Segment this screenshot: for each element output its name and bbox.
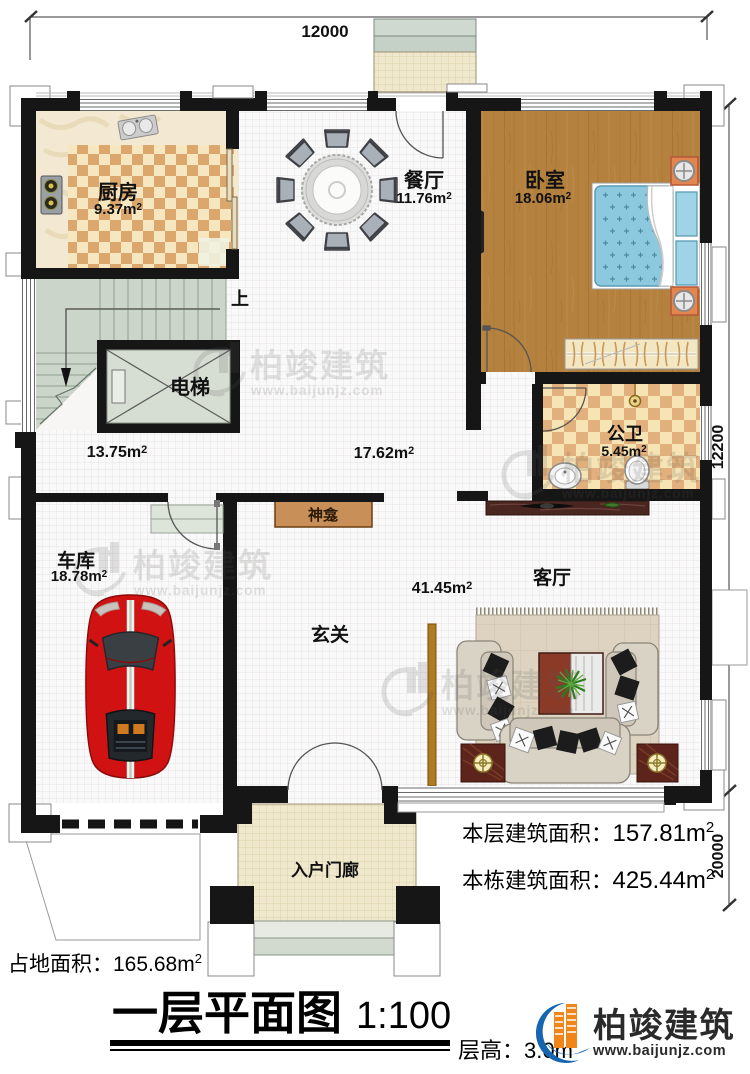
svg-text:电梯: 电梯 bbox=[170, 375, 210, 399]
svg-text:神龛: 神龛 bbox=[308, 506, 339, 524]
svg-text:www.baijunjz.com: www.baijunjz.com bbox=[561, 486, 695, 501]
svg-text:上: 上 bbox=[231, 289, 249, 309]
svg-text:18.78m2: 18.78m2 bbox=[51, 568, 108, 585]
svg-text:柏竣建筑: 柏竣建筑 bbox=[593, 1006, 735, 1045]
svg-text:卧室: 卧室 bbox=[525, 168, 565, 192]
svg-text:入户门廊: 入户门廊 bbox=[291, 860, 359, 880]
svg-text:www.baijunjz.com: www.baijunjz.com bbox=[441, 703, 575, 718]
svg-text:www.baijunjz.com: www.baijunjz.com bbox=[133, 583, 267, 598]
svg-text:本层建筑面积：157.81m2: 本层建筑面积：157.81m2 bbox=[462, 819, 714, 847]
svg-text:柏竣建筑: 柏竣建筑 bbox=[250, 347, 390, 384]
svg-text:41.45m2: 41.45m2 bbox=[412, 580, 472, 597]
svg-text:玄关: 玄关 bbox=[311, 623, 349, 646]
svg-text:柏竣建筑: 柏竣建筑 bbox=[133, 547, 273, 584]
svg-text:12000: 12000 bbox=[301, 22, 348, 41]
svg-text:9.37m2: 9.37m2 bbox=[94, 201, 143, 218]
svg-text:5.45m2: 5.45m2 bbox=[601, 443, 647, 459]
svg-text:18.06m2: 18.06m2 bbox=[515, 190, 572, 207]
svg-text:www.baijunjz.com: www.baijunjz.com bbox=[250, 383, 384, 398]
svg-text:1:100: 1:100 bbox=[356, 995, 451, 1037]
svg-text:17.62m2: 17.62m2 bbox=[354, 445, 414, 462]
svg-text:一层平面图: 一层平面图 bbox=[112, 987, 342, 1039]
svg-text:餐厅: 餐厅 bbox=[404, 168, 444, 192]
svg-text:13.75m2: 13.75m2 bbox=[87, 444, 147, 461]
svg-text:公卫: 公卫 bbox=[607, 424, 643, 444]
svg-text:本栋建筑面积：425.44m2: 本栋建筑面积：425.44m2 bbox=[462, 866, 714, 894]
svg-text:www.baijunjz.com: www.baijunjz.com bbox=[592, 1043, 726, 1059]
svg-text:柏竣建筑: 柏竣建筑 bbox=[441, 667, 581, 704]
svg-text:占地面积：165.68m2: 占地面积：165.68m2 bbox=[8, 951, 202, 976]
svg-text:客厅: 客厅 bbox=[533, 566, 571, 589]
svg-text:12200: 12200 bbox=[710, 425, 727, 470]
svg-text:11.76m2: 11.76m2 bbox=[396, 190, 452, 207]
